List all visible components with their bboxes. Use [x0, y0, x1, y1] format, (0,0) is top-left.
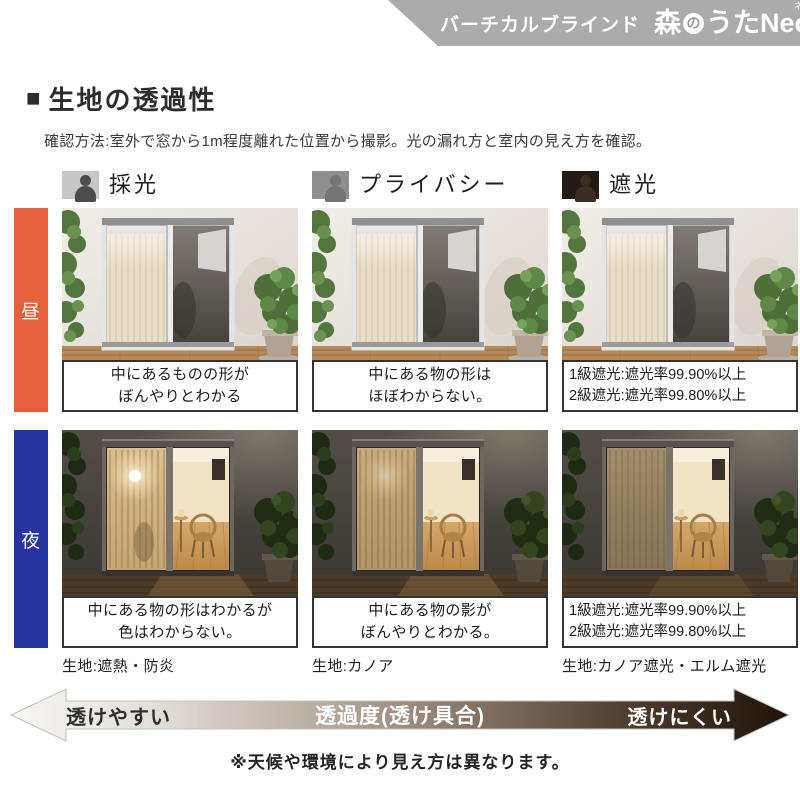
row-label-night: 夜	[14, 430, 48, 648]
column-label-shako: 遮光	[609, 169, 659, 201]
page-title: ■ 生地の透過性	[26, 80, 217, 117]
brand-uta: うた	[706, 10, 760, 37]
cell-night-shako: 1級遮光:遮光率99.90%以上 2級遮光:遮光率99.80%以上 生地:カノア…	[562, 430, 798, 676]
photo-day-shako	[562, 208, 798, 360]
column-label-privacy: プライバシー	[359, 169, 509, 201]
title-square-marker: ■	[26, 87, 43, 111]
column-header-privacy: プライバシー	[312, 169, 509, 205]
person-visible-icon	[62, 171, 99, 199]
leaf-no-icon: の	[683, 13, 704, 34]
caption-night-saiko: 中にある物の形はわかるが 色はわからない。	[62, 596, 298, 648]
brand-logo: 森 の うた Neo ネオ	[654, 10, 800, 37]
brand-mori: 森	[654, 10, 681, 37]
column-header-saiko: 採光	[62, 169, 159, 205]
method-description: 確認方法:室外で窓から1m程度離れた位置から撮影。光の漏れ方と室内の見え方を確認…	[44, 130, 651, 151]
photo-day-privacy	[312, 208, 548, 360]
header-bar: バーチカルブラインド 森 の うた Neo ネオ	[388, 0, 800, 46]
brand-neo-ruby: ネオ	[794, 2, 800, 11]
scale-right-label: 透けにくい	[627, 686, 732, 744]
series-label: バーチカルブラインド	[440, 10, 640, 37]
cell-day-privacy: 中にある物の形は ほぼわからない。	[312, 208, 548, 412]
title-text: 生地の透過性	[49, 80, 217, 117]
person-hidden-icon	[562, 171, 599, 199]
photo-night-saiko	[62, 430, 298, 596]
cell-day-shako: 1級遮光:遮光率99.90%以上 2級遮光:遮光率99.80%以上	[562, 208, 798, 412]
cell-night-privacy: 中にある物の影が ぼんやりとわかる。 生地:カノア	[312, 430, 548, 676]
brand-neo: Neo ネオ	[760, 10, 800, 37]
caption-day-shako: 1級遮光:遮光率99.90%以上 2級遮光:遮光率99.80%以上	[562, 360, 798, 412]
fabric-label-saiko: 生地:遮熱・防炎	[62, 655, 298, 676]
column-header-shako: 遮光	[562, 169, 659, 205]
fabric-label-shako: 生地:カノア遮光・エルム遮光	[562, 655, 798, 676]
column-label-saiko: 採光	[109, 169, 159, 201]
caption-day-saiko: 中にあるものの形が ぼんやりとわかる	[62, 360, 298, 412]
photo-night-shako	[562, 430, 798, 596]
caption-night-shako: 1級遮光:遮光率99.90%以上 2級遮光:遮光率99.80%以上	[562, 596, 798, 648]
caption-day-privacy: 中にある物の形は ほぼわからない。	[312, 360, 548, 412]
fabric-label-privacy: 生地:カノア	[312, 655, 548, 676]
cell-night-saiko: 中にある物の形はわかるが 色はわからない。 生地:遮熱・防炎	[62, 430, 298, 676]
transparency-scale: 透けやすい 透過度(透け具合) 透けにくい	[8, 686, 792, 744]
photo-night-privacy	[312, 430, 548, 596]
row-label-day: 昼	[14, 208, 48, 412]
footnote: ※天候や環境により見え方は異なります。	[0, 748, 800, 773]
photo-day-saiko	[62, 208, 298, 360]
cell-day-saiko: 中にあるものの形が ぼんやりとわかる	[62, 208, 298, 412]
person-faint-icon	[312, 171, 349, 199]
caption-night-privacy: 中にある物の影が ぼんやりとわかる。	[312, 596, 548, 648]
